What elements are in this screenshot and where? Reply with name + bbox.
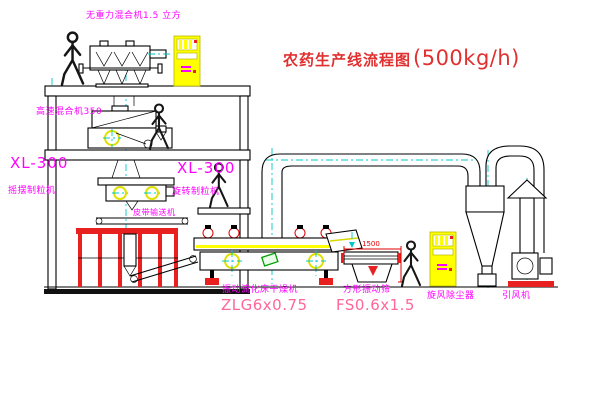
process-flow-diagram: 农药生产线流程图 (500kg/h) 无重力混合机1.5 立方 高速混合机350… — [0, 0, 600, 403]
title-text: 农药生产线流程图 — [283, 49, 411, 70]
page-title: 农药生产线流程图 (500kg/h) — [283, 46, 520, 70]
label-dryer-model: ZLG6x0.75 — [221, 298, 308, 313]
cyclone-dust-collector — [466, 186, 504, 286]
title-capacity: (500kg/h) — [413, 46, 520, 70]
exhaust-duct — [262, 154, 480, 238]
dryer-ports — [203, 225, 331, 238]
label-screen-model: FS0.6x1.5 — [336, 298, 415, 313]
induced-draft-fan — [508, 253, 554, 287]
label-granulator-right-model: XL-300 — [177, 161, 235, 176]
label-belt-conveyor: 皮带输送机 — [133, 209, 176, 217]
exhaust-stack — [508, 180, 546, 253]
belt-conveyor — [96, 218, 188, 224]
fluid-bed-dryer — [194, 225, 342, 285]
granulator — [98, 178, 174, 210]
dimension-1500: 1500 — [362, 241, 380, 248]
label-cyclone: 旋风除尘器 — [427, 292, 475, 301]
control-cabinet-bottom — [430, 232, 456, 286]
label-fan: 引风机 — [502, 292, 531, 301]
label-granulator-right-name: 旋转制粒机 — [172, 188, 220, 197]
label-granulator-left-name: 摇摆制粒机 — [8, 187, 56, 196]
control-cabinet-top — [174, 36, 200, 86]
label-dryer-name: 振动流化床干燥机 — [222, 286, 298, 295]
label-granulator-left-model: XL-300 — [10, 156, 68, 171]
label-screen-name: 方形振动筛 — [343, 286, 391, 295]
label-high-speed-mixer: 高速混合机350 — [36, 108, 102, 117]
label-gravity-mixer: 无重力混合机1.5 立方 — [86, 12, 181, 21]
person-icon — [62, 33, 83, 85]
person-icon — [402, 242, 420, 287]
